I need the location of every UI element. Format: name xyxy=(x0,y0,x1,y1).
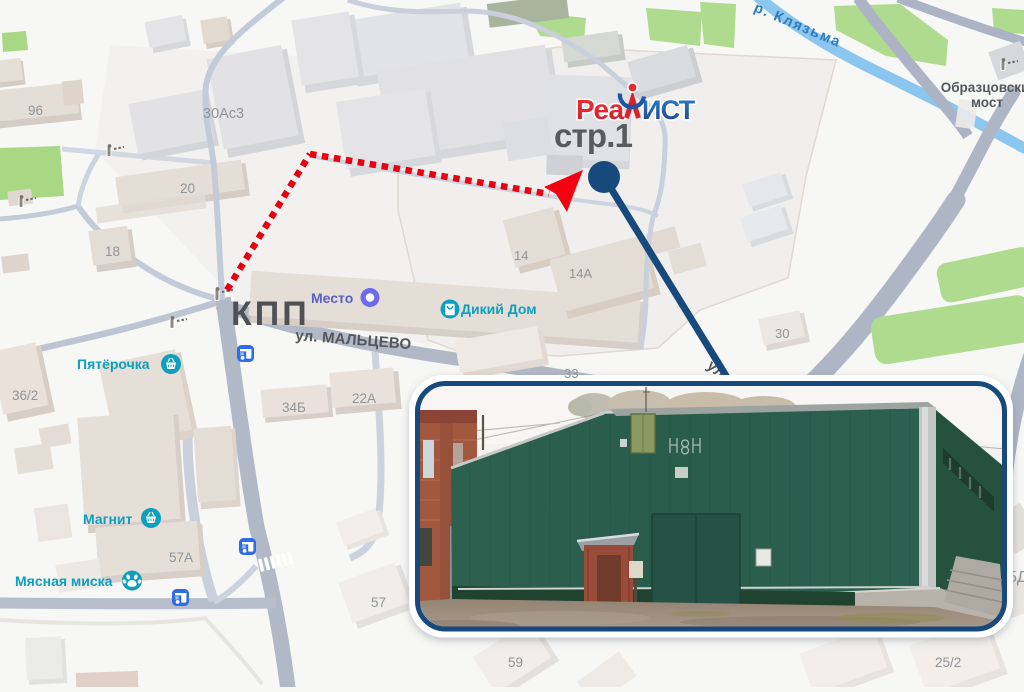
svg-text:59: 59 xyxy=(508,655,523,670)
svg-text:33: 33 xyxy=(564,366,578,381)
svg-text:Дикий Дом: Дикий Дом xyxy=(461,301,537,317)
svg-text:22А: 22А xyxy=(352,391,376,406)
svg-text:стр.1: стр.1 xyxy=(554,117,633,154)
svg-text:Место: Место xyxy=(311,290,353,306)
svg-text:Магнит: Магнит xyxy=(83,511,133,527)
svg-text:14А: 14А xyxy=(569,266,592,281)
svg-text:96: 96 xyxy=(28,103,43,118)
svg-text:14: 14 xyxy=(514,248,528,263)
svg-text:ИСТ: ИСТ xyxy=(642,95,696,125)
svg-text:34Б: 34Б xyxy=(282,400,306,415)
svg-text:36/2: 36/2 xyxy=(12,388,38,403)
svg-text:Пятёрочка: Пятёрочка xyxy=(77,356,150,372)
svg-text:18: 18 xyxy=(105,244,120,259)
svg-text:30Ас3: 30Ас3 xyxy=(203,106,244,122)
svg-text:мост: мост xyxy=(971,95,1003,110)
svg-text:57: 57 xyxy=(371,595,386,610)
svg-text:20: 20 xyxy=(180,181,195,196)
svg-text:30: 30 xyxy=(775,326,789,341)
svg-text:Образцовски: Образцовски xyxy=(941,80,1024,95)
svg-text:57А: 57А xyxy=(169,550,193,565)
svg-text:КПП: КПП xyxy=(231,295,310,333)
svg-text:25/2: 25/2 xyxy=(935,655,961,670)
svg-text:Мясная миска: Мясная миска xyxy=(15,573,113,589)
